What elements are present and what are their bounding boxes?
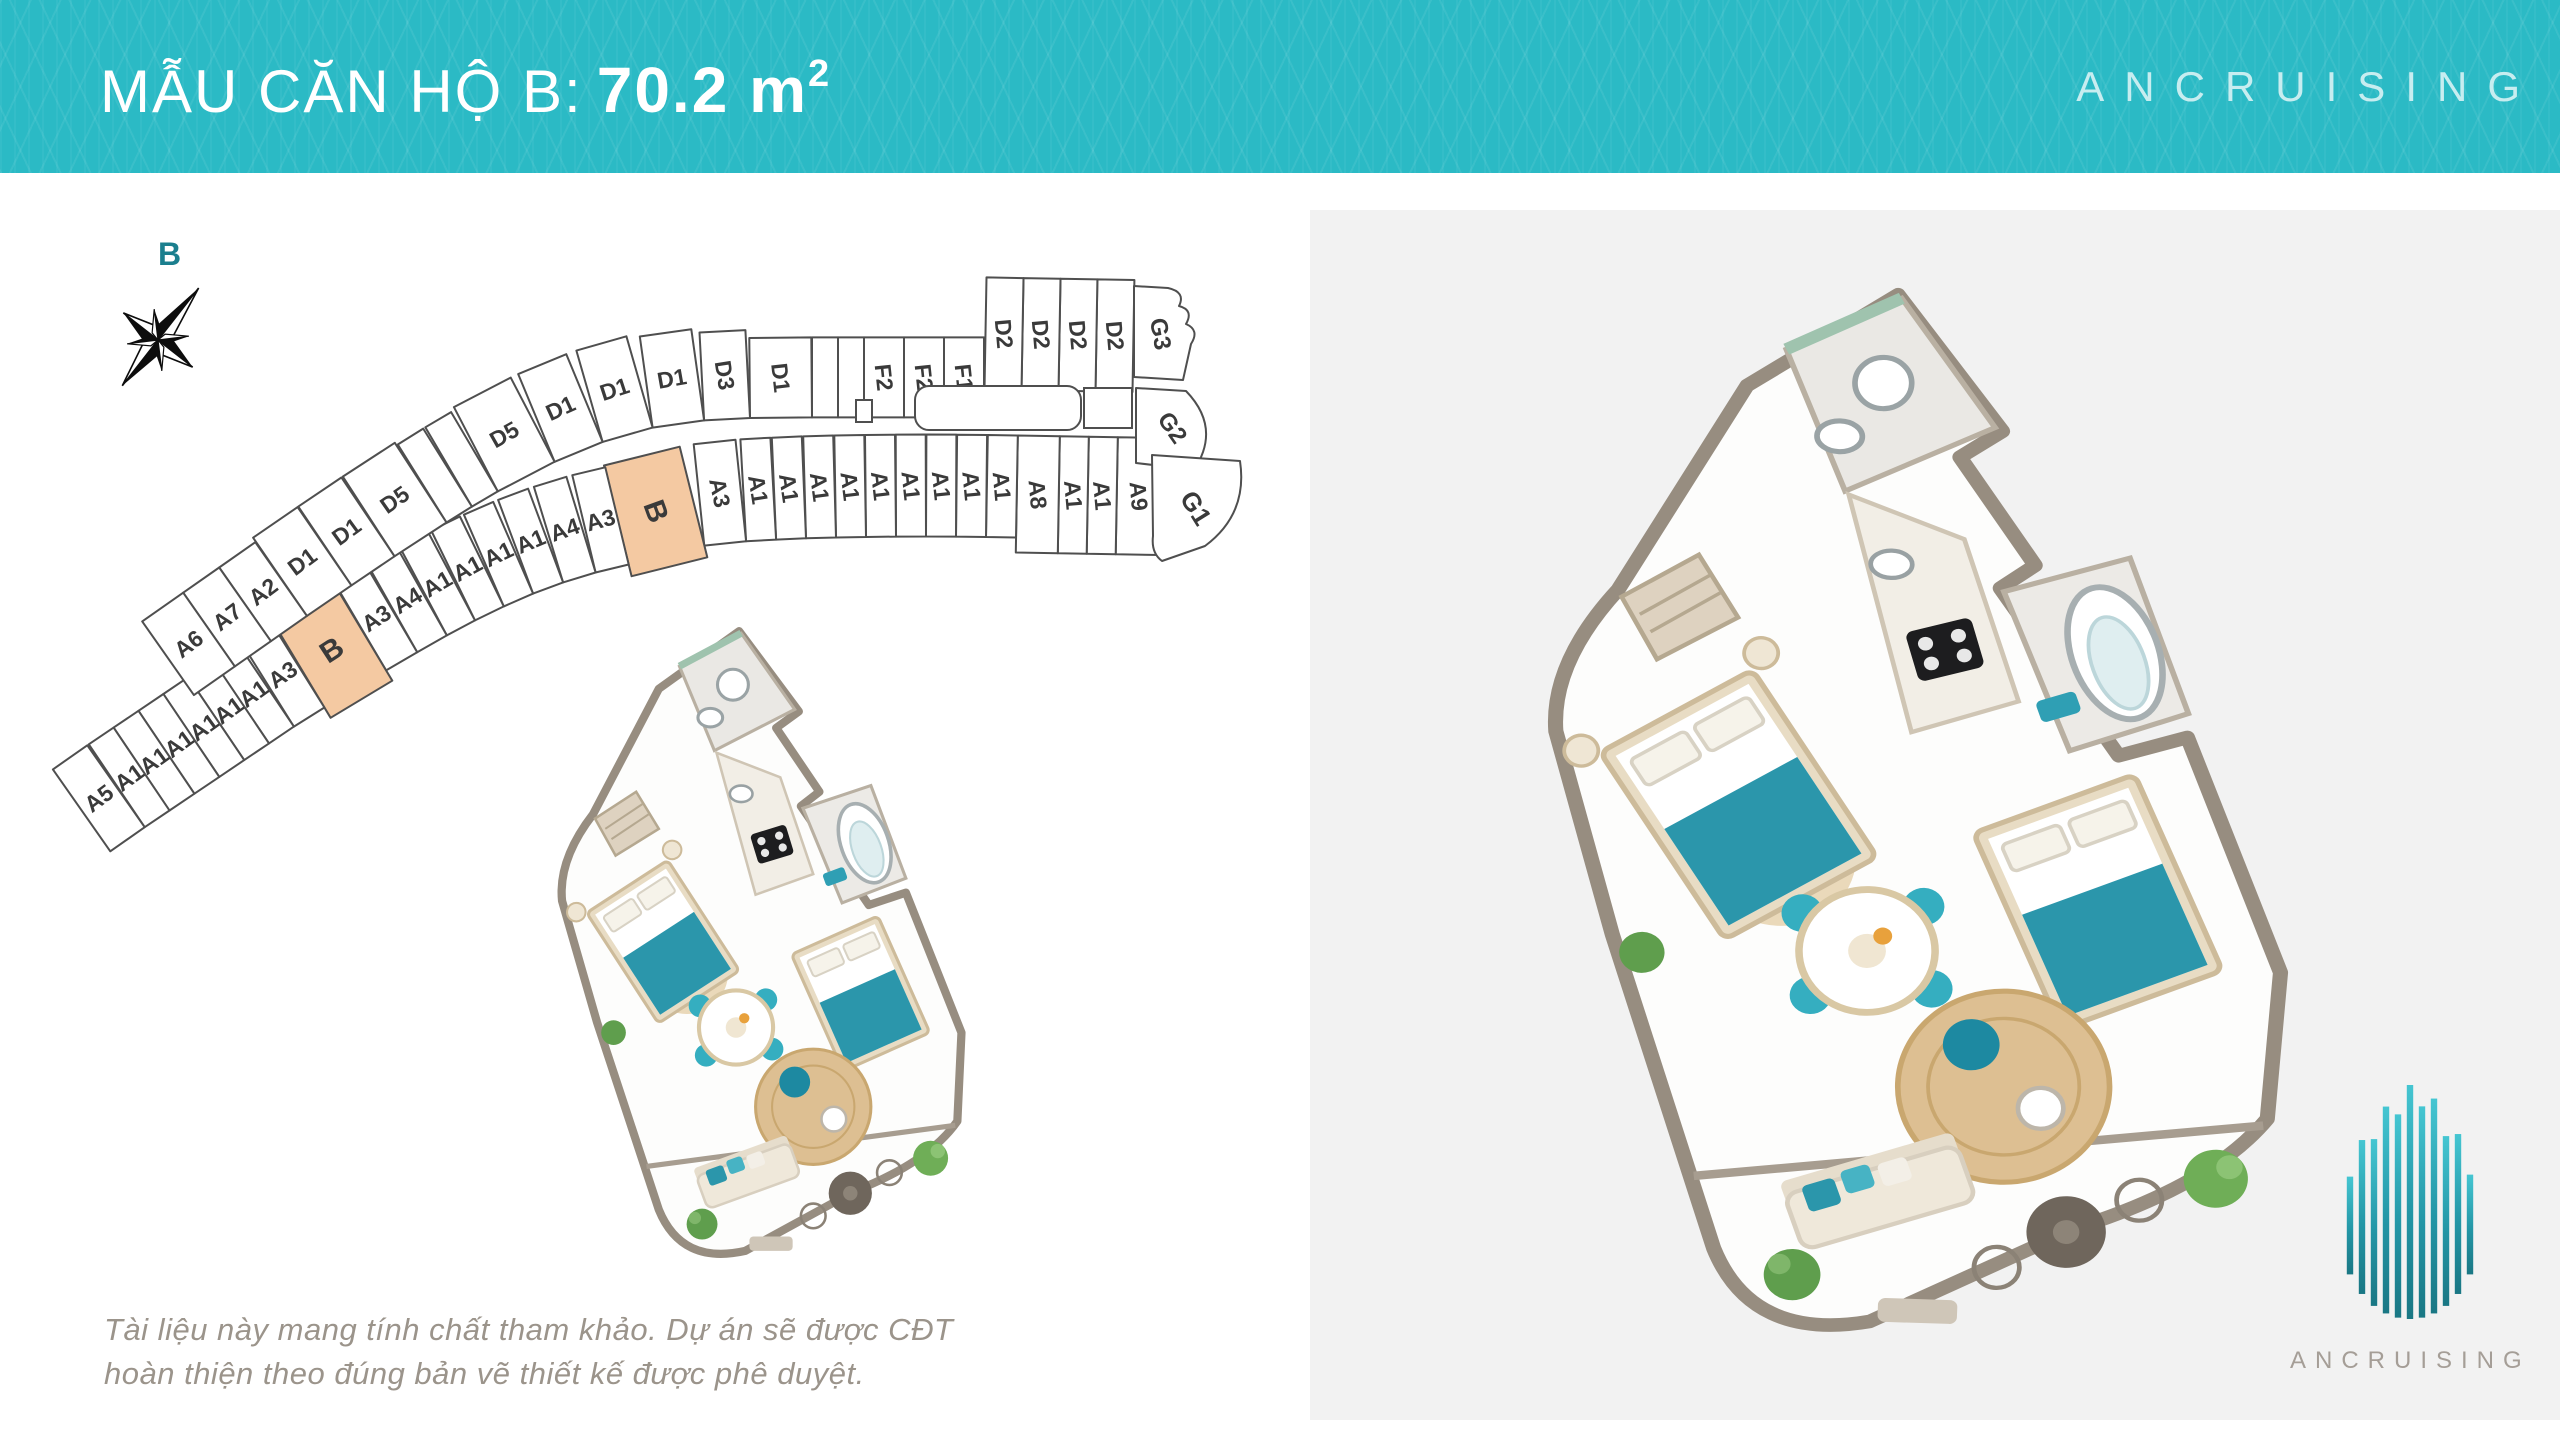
logo-wordmark: ANCRUISING	[2290, 1347, 2530, 1375]
keyplan-corridor-void	[915, 386, 1081, 430]
disclaimer-line-2: hoàn thiện theo đúng bản vẽ thiết kế đượ…	[104, 1352, 953, 1396]
logo-bar	[2371, 1139, 2377, 1306]
keyplan-cell-label: A1	[805, 471, 835, 504]
logo-bar	[2383, 1107, 2389, 1314]
logo-bar	[2431, 1099, 2437, 1314]
keyplan-cap-g3: G3	[1134, 286, 1195, 380]
keyplan-cell-label: A8	[1024, 479, 1052, 511]
logo-bar	[2395, 1114, 2401, 1317]
keyplan-cell-label: D2	[1064, 319, 1092, 351]
unit-plan-shape	[562, 631, 962, 1254]
keyplan-corner-cell	[1084, 388, 1132, 428]
developer-logo: ANCRUISING	[2290, 1085, 2530, 1395]
logo-bar	[2359, 1140, 2365, 1294]
logo-bar	[2467, 1175, 2473, 1275]
keyplan-cell-label: A1	[866, 470, 895, 502]
keyplan-cell-label: D1	[655, 363, 689, 394]
logo-bar	[2443, 1136, 2449, 1306]
keyplan-cell-label: A1	[988, 470, 1016, 502]
keyplan-cell-label: D3	[710, 359, 740, 392]
keyplan-cell-label: A1	[927, 470, 956, 502]
logo-bars-icon	[2290, 1085, 2530, 1335]
logo-bar	[2419, 1106, 2425, 1317]
keyplan-cell-label: D2	[1027, 319, 1055, 351]
disclaimer-line-1: Tài liệu này mang tính chất tham khảo. D…	[104, 1308, 953, 1352]
logo-bar	[2407, 1085, 2413, 1319]
keyplan-cell-label: D1	[766, 362, 795, 394]
logo-bar	[2455, 1134, 2461, 1294]
keyplan-cell-label: A1	[957, 470, 986, 502]
svg-text:G3: G3	[1144, 316, 1176, 352]
keyplan-cell-label: A1	[896, 470, 925, 502]
brand-wordmark-header: ANCRUISING	[2076, 63, 2540, 111]
keyplan-cell-label: A1	[743, 473, 773, 506]
keyplan-cell-label: D2	[1101, 320, 1129, 352]
logo-bar	[2347, 1177, 2353, 1275]
unit-plan-3d-shape	[1532, 284, 2306, 1338]
keyplan-cell-label: A1	[1088, 480, 1116, 512]
keyplan-cell-label: A9	[1125, 480, 1153, 512]
keyplan-cell-label: A1	[835, 470, 864, 503]
keyplan-notch	[856, 400, 872, 422]
keyplan-cell-label: A1	[1059, 479, 1087, 511]
floorplan-2d	[440, 590, 1100, 1290]
disclaimer-text: Tài liệu này mang tính chất tham khảo. D…	[104, 1308, 953, 1396]
keyplan-cell	[812, 337, 838, 417]
keyplan-cap-g1: G1	[1152, 455, 1241, 561]
keyplan-cell-label: D2	[990, 318, 1018, 350]
keyplan-cell-label: A1	[774, 472, 804, 505]
keyplan-cell-label: F2	[870, 363, 899, 392]
brochure-page: MẪU CĂN HỘ B:70.2 m2 ANCRUISING	[0, 0, 2560, 1440]
